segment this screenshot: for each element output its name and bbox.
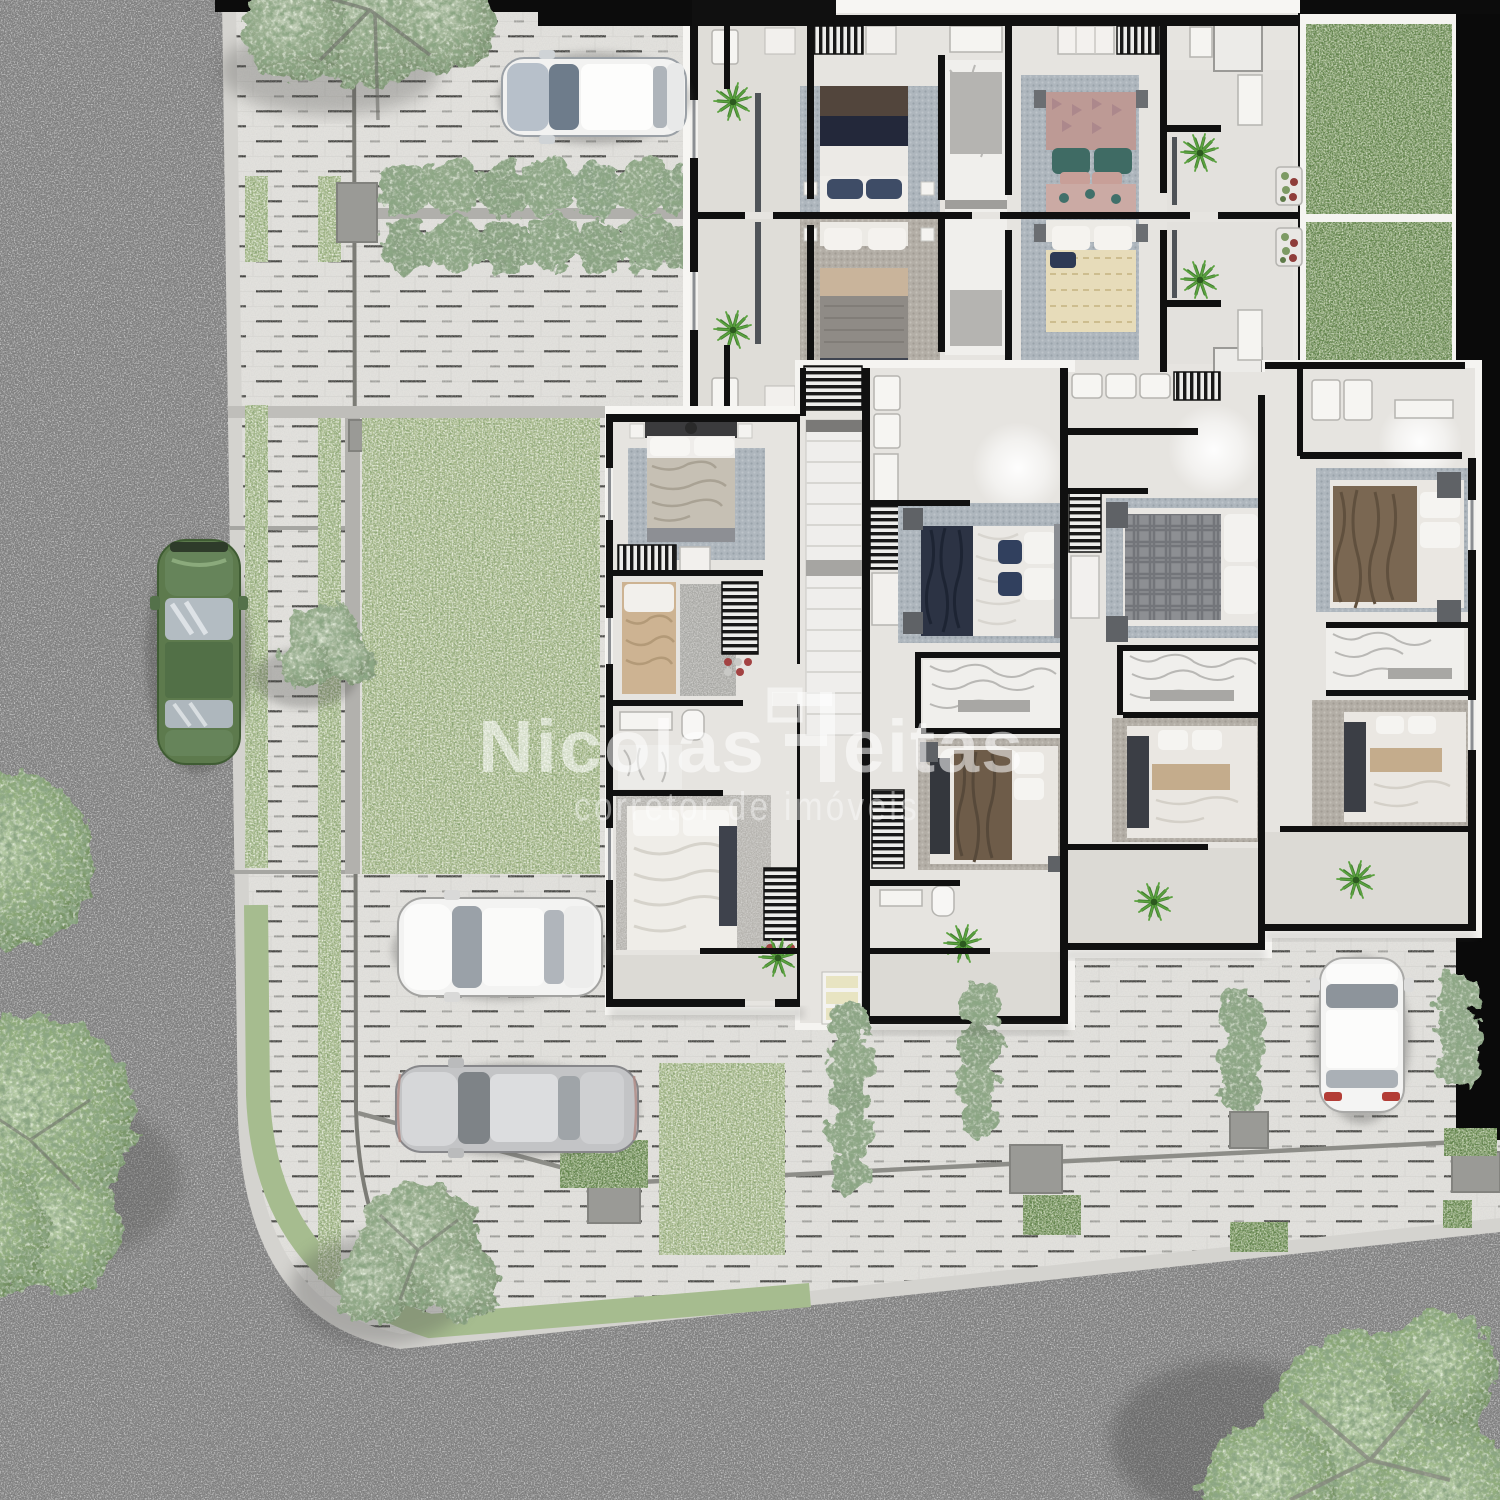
svg-text:Nicolas: Nicolas	[478, 705, 766, 788]
svg-text:corretor de imóveis: corretor de imóveis	[574, 785, 920, 829]
svg-text:eitas: eitas	[843, 705, 1025, 788]
